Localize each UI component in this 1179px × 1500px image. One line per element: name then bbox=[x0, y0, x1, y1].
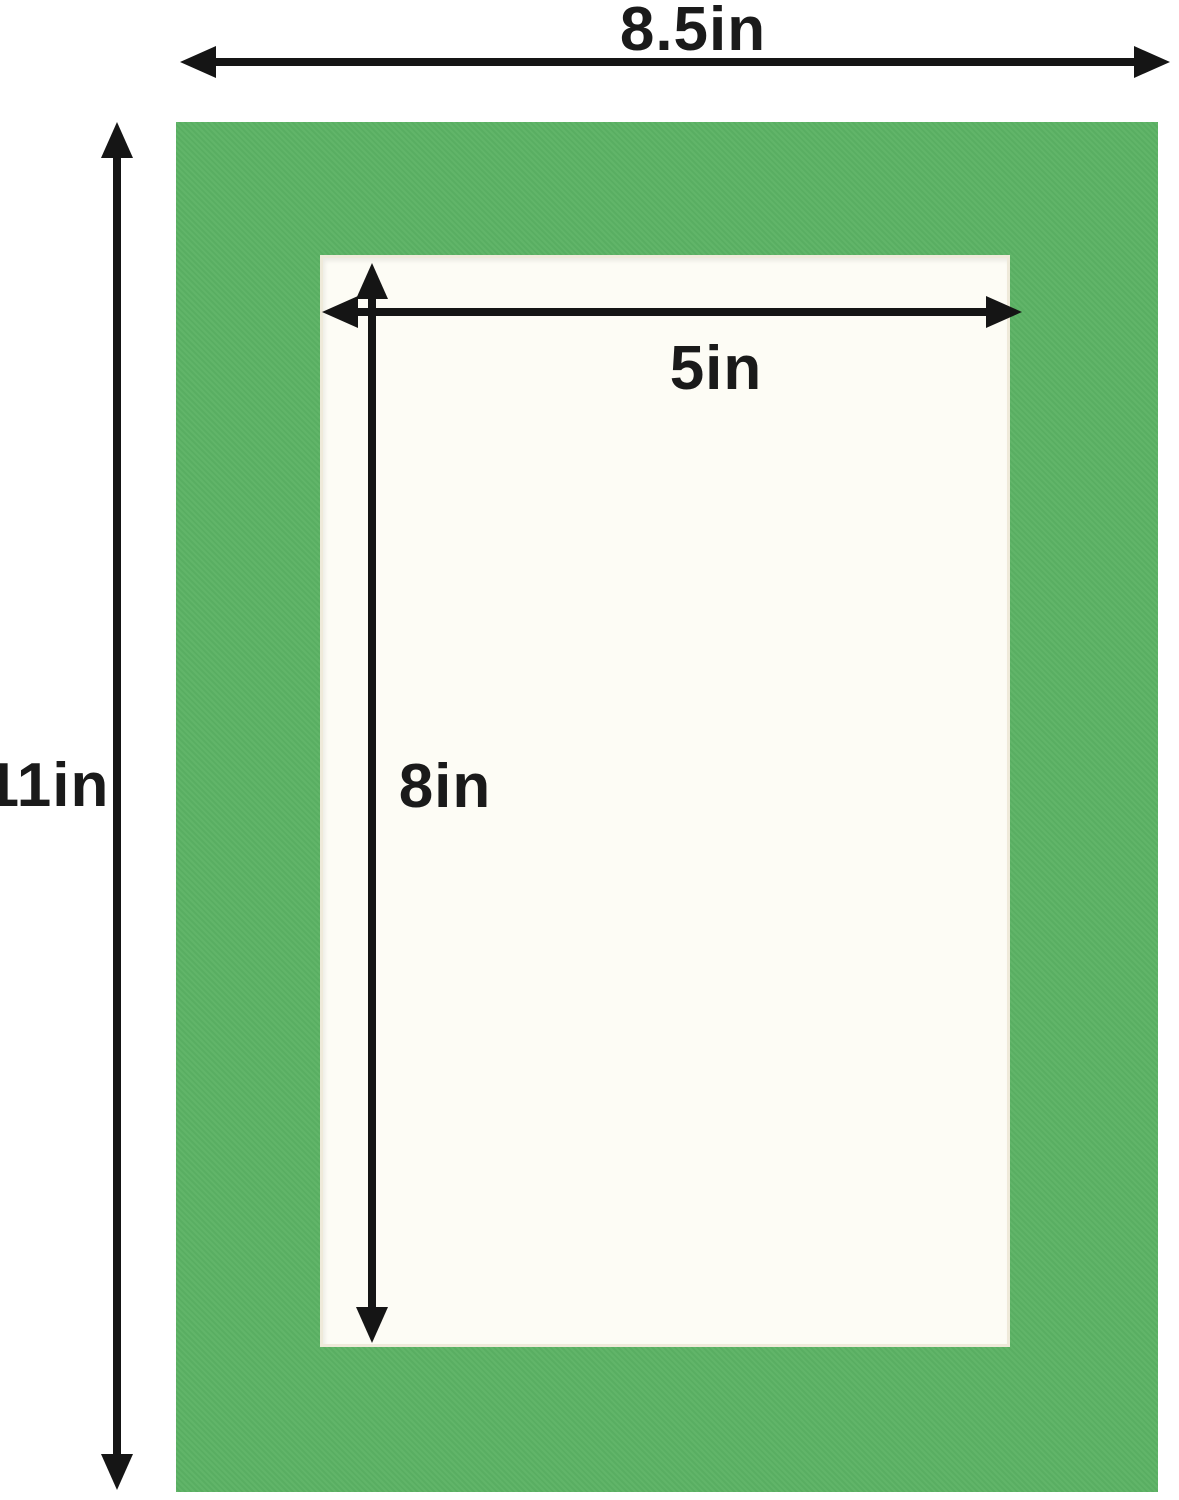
arrowhead-right-icon bbox=[986, 296, 1022, 328]
dimension-line bbox=[350, 308, 994, 316]
dimension-line bbox=[113, 150, 121, 1462]
arrowhead-right-icon bbox=[1134, 46, 1170, 78]
arrowhead-down-icon bbox=[356, 1307, 388, 1343]
outer-height-label: 11in bbox=[0, 755, 109, 817]
inner-width-dimension-arrow bbox=[322, 296, 1022, 328]
mat-dimension-diagram: 8.5in 11in 5in 8in bbox=[0, 0, 1179, 1500]
inner-height-dimension-arrow bbox=[356, 263, 388, 1343]
arrowhead-down-icon bbox=[101, 1454, 133, 1490]
outer-width-label: 8.5in bbox=[620, 0, 766, 61]
inner-height-label: 8in bbox=[399, 756, 492, 818]
inner-width-label: 5in bbox=[670, 338, 763, 400]
dimension-line bbox=[368, 291, 376, 1315]
